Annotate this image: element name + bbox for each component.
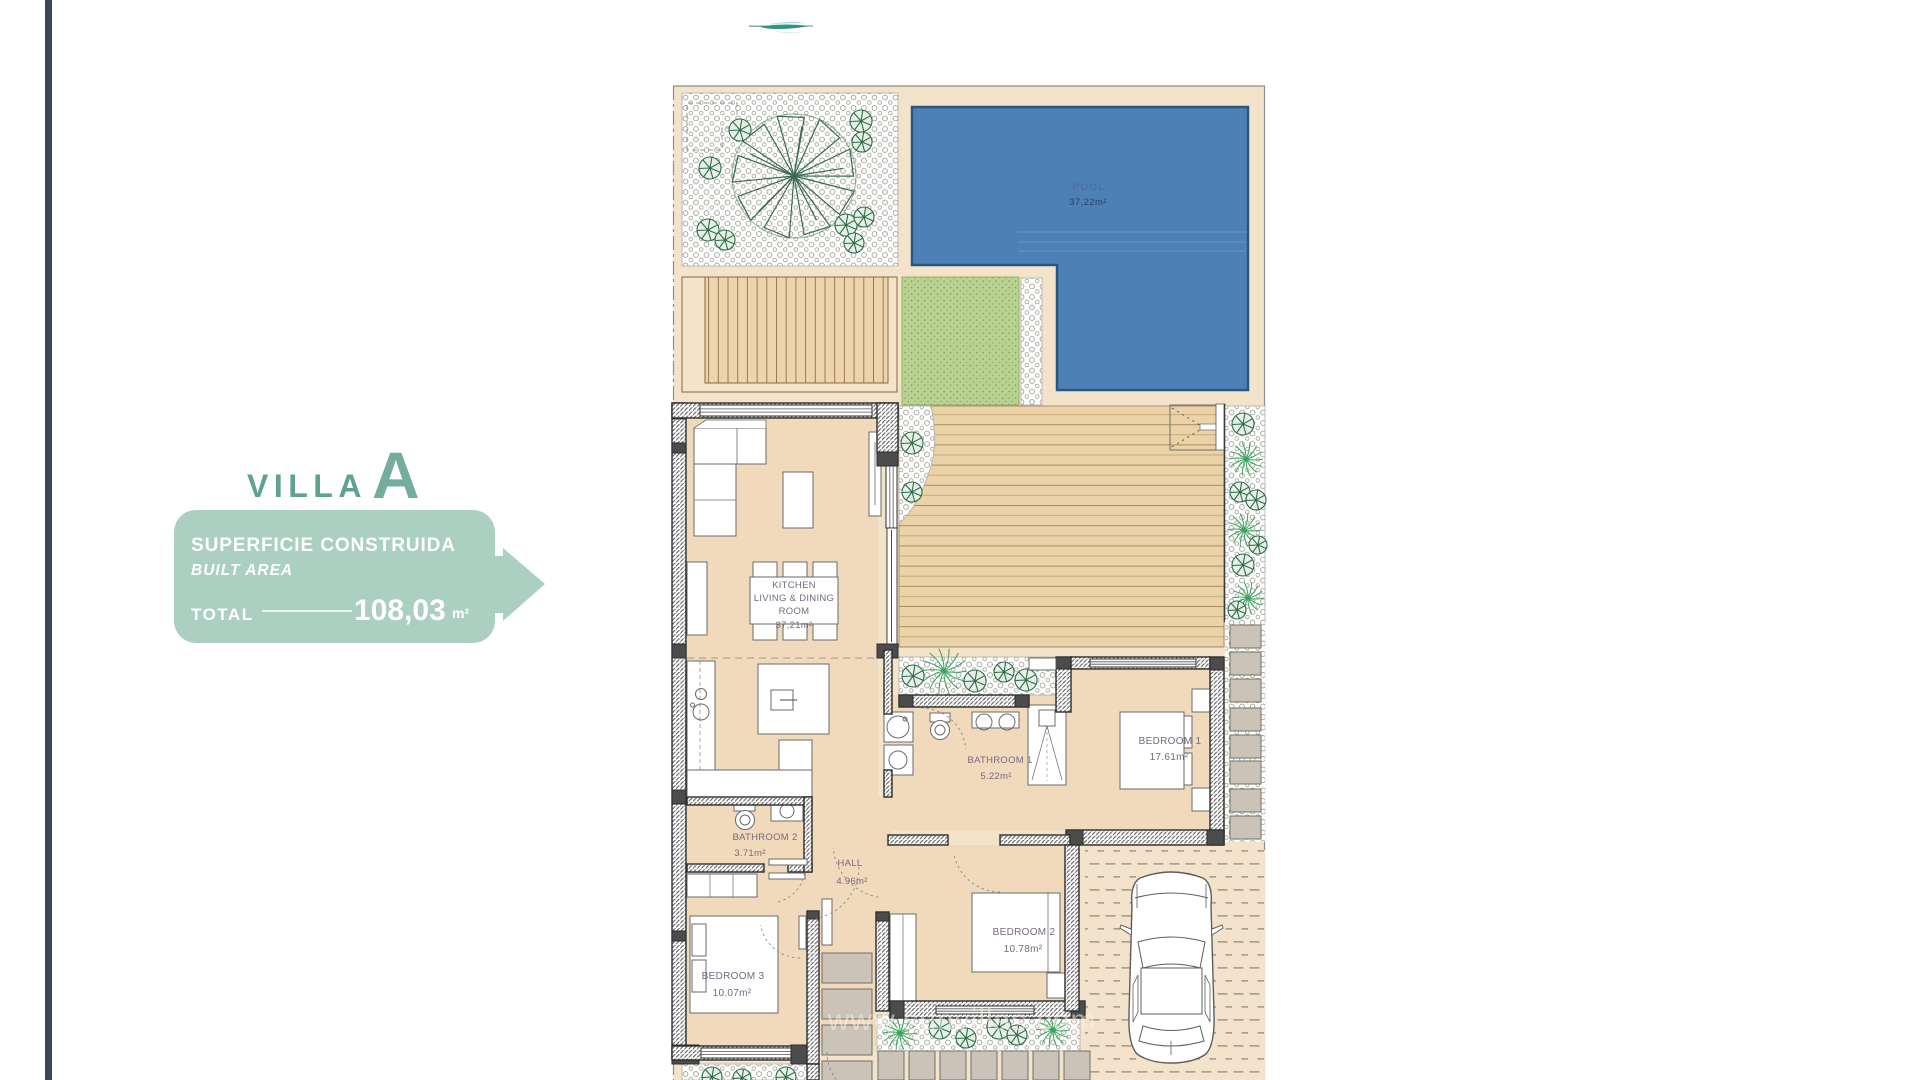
svg-text:A: A [372,438,420,512]
svg-text:108,03: 108,03 [354,594,446,627]
svg-text:BEDROOM 1: BEDROOM 1 [1139,736,1202,747]
svg-text:www.sunvillas.com: www.sunvillas.com [827,1004,1097,1037]
svg-text:BUILT AREA: BUILT AREA [191,562,293,579]
svg-text:POOL: POOL [1073,182,1105,193]
svg-text:ROOM: ROOM [779,606,810,617]
svg-text:BATHROOM 1: BATHROOM 1 [967,755,1032,766]
svg-text:37,21m²: 37,21m² [776,620,813,631]
svg-text:HALL: HALL [838,858,863,869]
svg-text:10.78m²: 10.78m² [1004,944,1043,955]
svg-text:4.96m²: 4.96m² [836,876,867,887]
svg-text:10.07m²: 10.07m² [713,988,752,999]
svg-text:VILLA: VILLA [247,468,367,504]
svg-text:3.71m²: 3.71m² [734,848,765,859]
svg-text:37,22m²: 37,22m² [1069,197,1107,208]
svg-text:SUPERFICIE CONSTRUIDA: SUPERFICIE CONSTRUIDA [191,535,456,556]
svg-text:m²: m² [452,605,469,621]
svg-text:LIVING & DINING: LIVING & DINING [754,593,835,604]
svg-text:BATHROOM 2: BATHROOM 2 [732,832,797,843]
svg-text:TOTAL: TOTAL [191,605,254,624]
svg-text:5.22m²: 5.22m² [980,771,1011,782]
svg-text:BEDROOM 2: BEDROOM 2 [993,927,1056,938]
svg-text:KITCHEN: KITCHEN [772,580,816,591]
svg-text:17.61m²: 17.61m² [1150,752,1189,763]
svg-text:BEDROOM 3: BEDROOM 3 [702,971,765,982]
